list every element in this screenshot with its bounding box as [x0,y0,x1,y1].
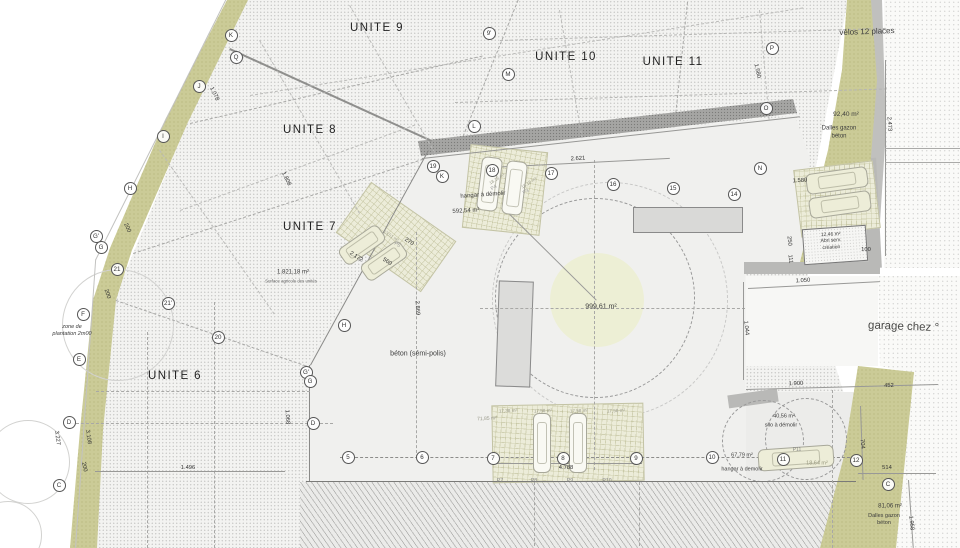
grid-marker: I [157,130,170,143]
grid-marker: P [766,42,779,55]
grid-marker: G [95,241,108,254]
grid-marker: K [225,29,238,42]
grid-marker: H [124,182,137,195]
grid-marker: 7 [487,452,500,465]
grid-markers-layer: KQJIHG'GFEDCHG'GD9'MLKPONC2121'201918171… [0,0,960,548]
grid-marker: 19 [427,160,440,173]
grid-marker: 21' [162,297,175,310]
grid-marker: D [307,417,320,430]
grid-marker: 10 [706,451,719,464]
grid-marker: 17 [545,167,558,180]
grid-marker: Q [230,51,243,64]
grid-marker: 6 [416,451,429,464]
grid-marker: 9 [630,452,643,465]
grid-marker: D [63,416,76,429]
grid-marker: G [304,375,317,388]
grid-marker: 5 [342,451,355,464]
grid-marker: 20 [212,331,225,344]
grid-marker: J [193,80,206,93]
grid-marker: 8 [557,452,570,465]
grid-marker: 16 [607,178,620,191]
grid-marker: O [760,102,773,115]
grid-marker: 12 [850,454,863,467]
grid-marker: C [882,478,895,491]
grid-marker: 21 [111,263,124,276]
grid-marker: H [338,319,351,332]
site-plan: 2.6211.5801.5802.4731.0781.8082002002003… [0,0,960,548]
grid-marker: M [502,68,515,81]
grid-marker: 18 [486,164,499,177]
grid-marker: 15 [667,182,680,195]
grid-marker: 9' [483,27,496,40]
grid-marker: E [73,353,86,366]
grid-marker: C [53,479,66,492]
grid-marker: N [754,162,767,175]
grid-marker: 14 [728,188,741,201]
grid-marker: F [77,308,90,321]
grid-marker: 11 [777,453,790,466]
grid-marker: L [468,120,481,133]
